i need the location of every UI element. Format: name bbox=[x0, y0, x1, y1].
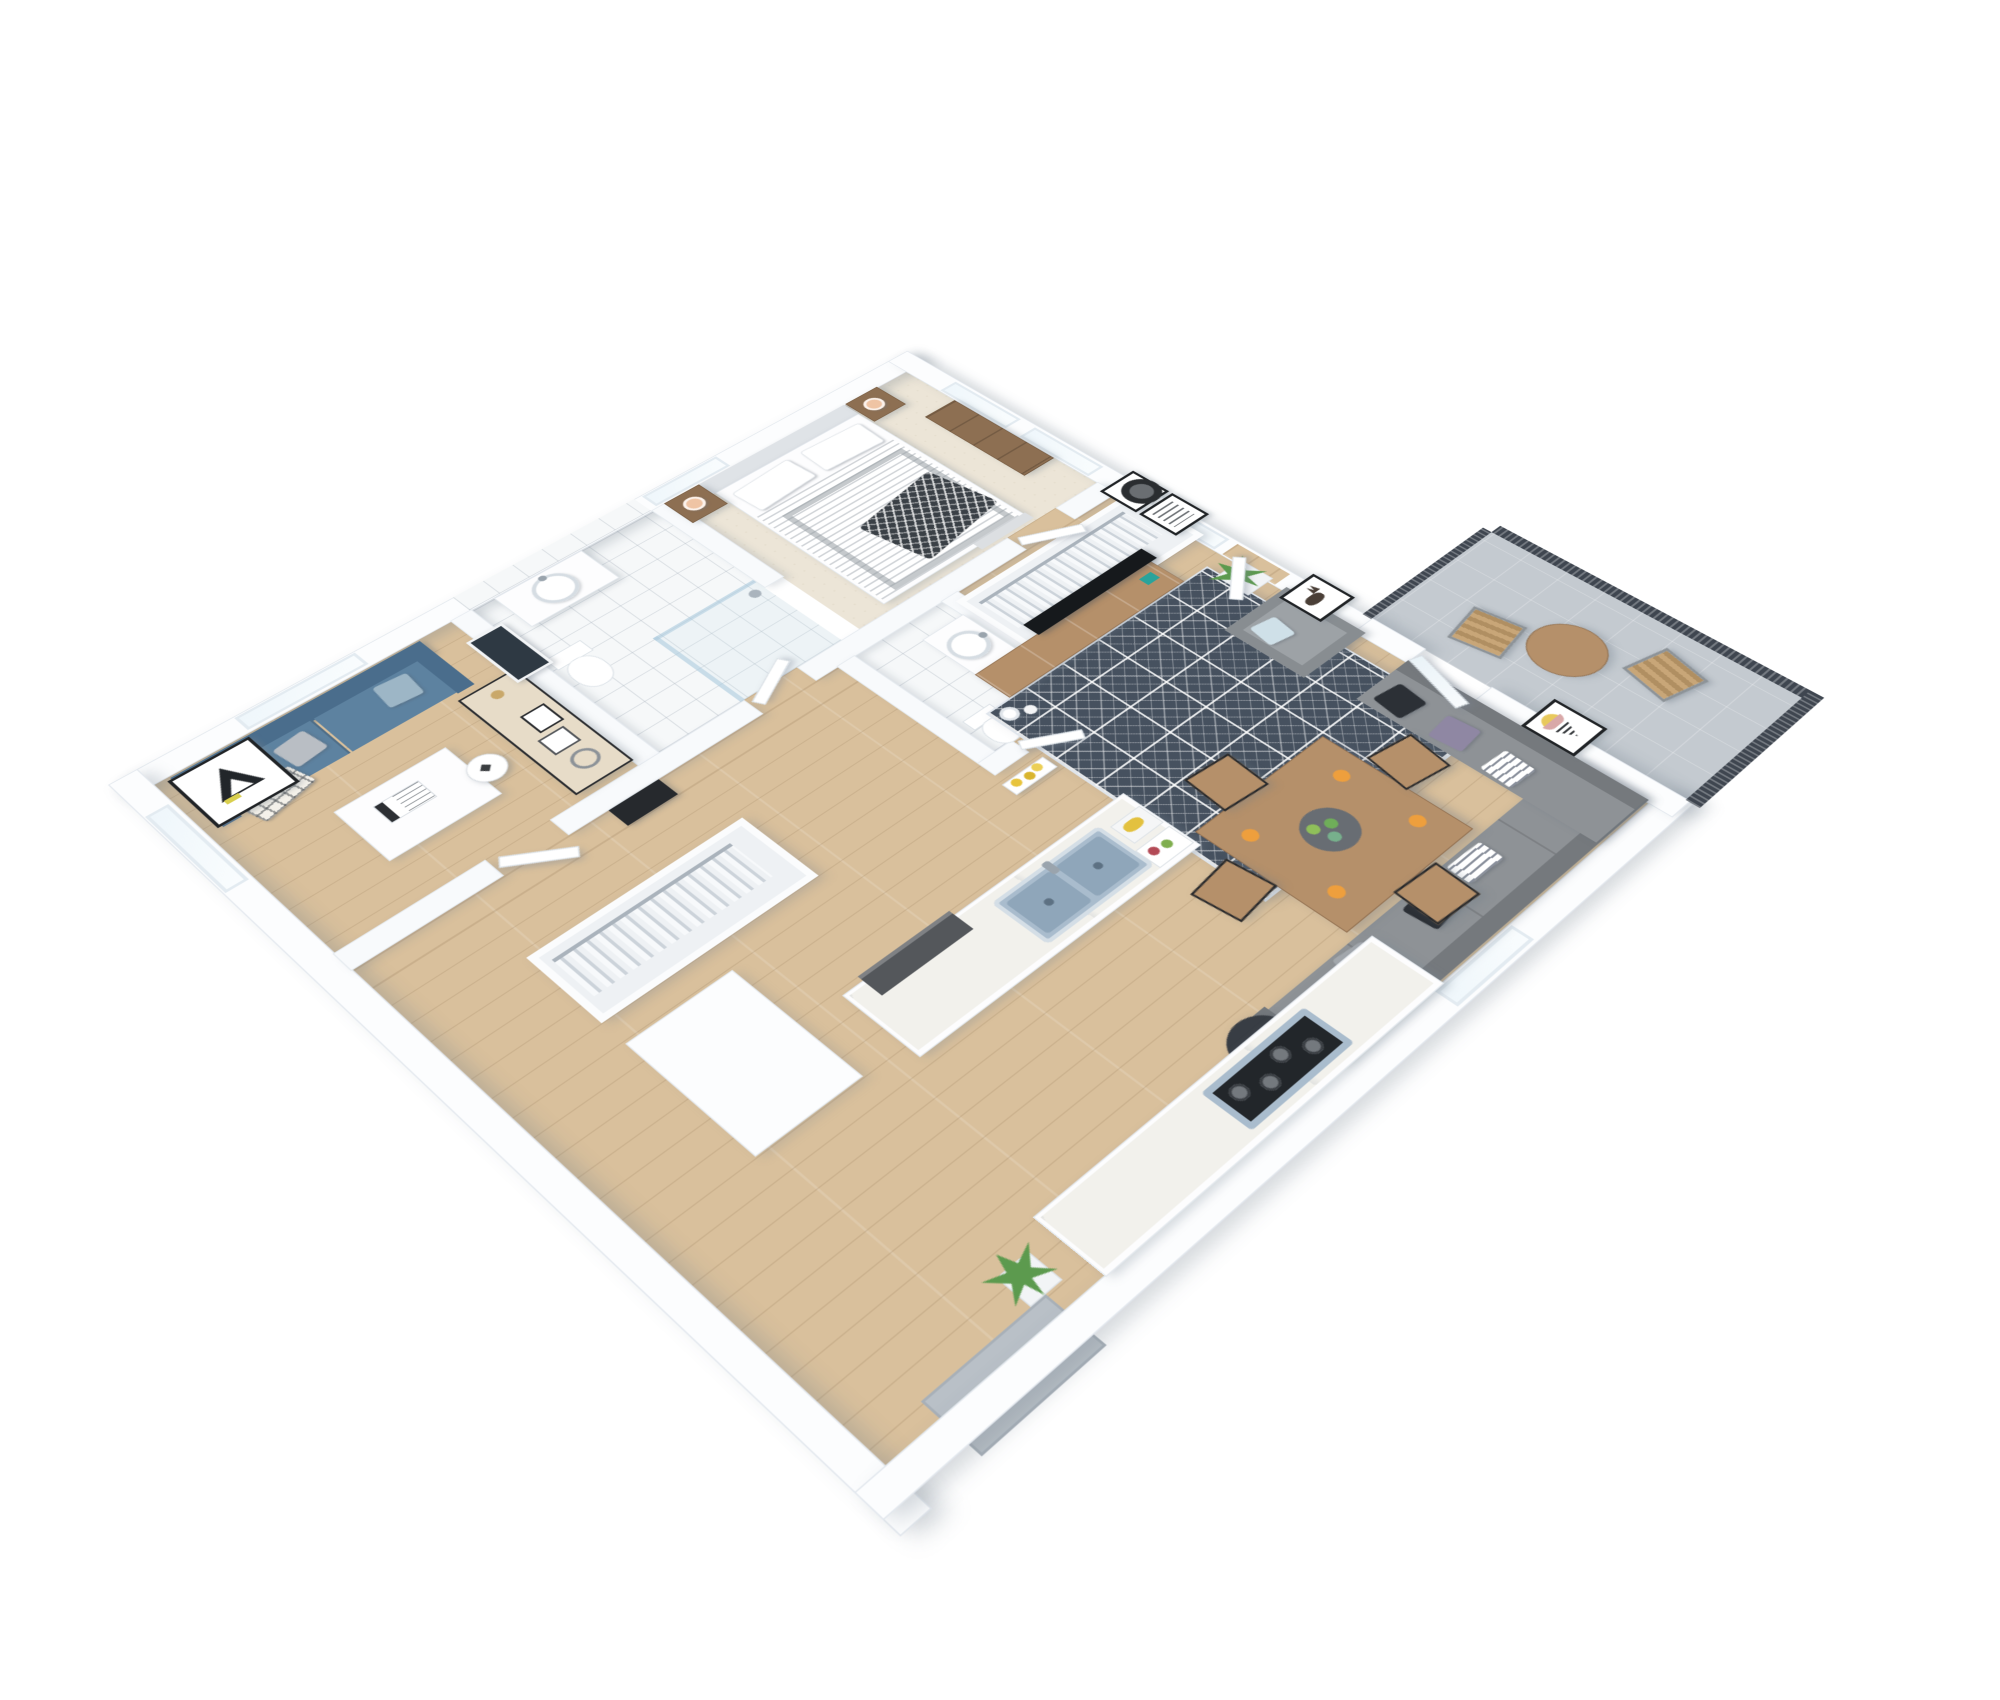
apartment-floor-plan bbox=[78, 271, 1899, 1616]
shell-chair-legs bbox=[480, 765, 491, 771]
deer-glyph-body bbox=[1302, 591, 1327, 607]
render-canvas bbox=[0, 0, 2000, 1700]
